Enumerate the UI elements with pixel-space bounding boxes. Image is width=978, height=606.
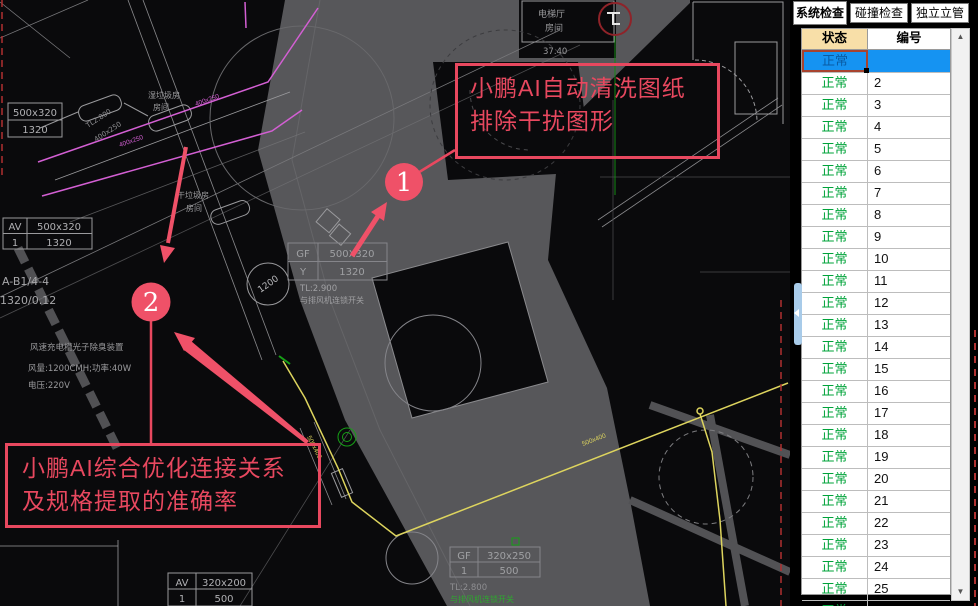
table-row[interactable]: 正常 10 <box>802 249 950 271</box>
table-row[interactable]: 正常 5 <box>802 139 950 161</box>
svg-text:320x250: 320x250 <box>487 551 531 562</box>
status-cell[interactable]: 正常 <box>802 205 868 226</box>
id-cell[interactable]: 20 <box>868 469 950 490</box>
status-cell[interactable]: 正常 <box>802 161 868 182</box>
red-dashed-edge-line <box>974 330 976 606</box>
id-cell[interactable]: 15 <box>868 359 950 380</box>
status-cell[interactable]: 正常 <box>802 513 868 534</box>
table-scrollbar[interactable]: ▲ ▼ <box>951 28 970 601</box>
svg-text:房间: 房间 <box>186 203 202 213</box>
status-cell[interactable]: 正常 <box>802 403 868 424</box>
id-cell[interactable]: 25 <box>868 579 950 600</box>
column-header-status[interactable]: 状态 <box>802 29 868 49</box>
svg-text:1: 1 <box>396 168 413 198</box>
id-cell[interactable]: 21 <box>868 491 950 512</box>
svg-text:A-B1/4-4: A-B1/4-4 <box>2 275 49 288</box>
svg-text:1320/0.12: 1320/0.12 <box>0 294 56 307</box>
svg-text:风速充电槽光子除臭装置: 风速充电槽光子除臭装置 <box>30 342 124 353</box>
svg-text:1320: 1320 <box>46 238 71 249</box>
panel-collapse-handle[interactable] <box>794 283 802 345</box>
svg-text:1320: 1320 <box>22 125 47 136</box>
scrollbar-up-icon[interactable]: ▲ <box>952 29 969 45</box>
status-cell[interactable]: 正常 <box>802 491 868 512</box>
id-cell[interactable]: 6 <box>868 161 950 182</box>
tab-collision-check[interactable]: 碰撞检查 <box>850 3 908 23</box>
status-cell[interactable]: 正常 <box>802 95 868 116</box>
table-row[interactable]: 正常 24 <box>802 557 950 579</box>
status-cell[interactable]: 正常 <box>802 359 868 380</box>
id-cell[interactable]: 2 <box>868 73 950 94</box>
status-cell[interactable]: 正常 <box>802 183 868 204</box>
svg-text:2: 2 <box>143 288 160 318</box>
column-header-id[interactable]: 编号 <box>868 29 950 49</box>
status-cell[interactable]: 正常 <box>802 469 868 490</box>
id-cell[interactable]: 11 <box>868 271 950 292</box>
id-cell[interactable]: 18 <box>868 425 950 446</box>
table-row[interactable]: 正常 7 <box>802 183 950 205</box>
status-cell[interactable]: 正常 <box>802 579 868 600</box>
id-cell[interactable]: 10 <box>868 249 950 270</box>
svg-text:GF: GF <box>296 249 310 260</box>
annotation-note-1-line2: 排除干扰图形 <box>470 105 717 138</box>
status-cell[interactable]: 正常 <box>802 271 868 292</box>
svg-text:湿垃圾房: 湿垃圾房 <box>148 90 180 100</box>
svg-text:GF: GF <box>457 551 471 562</box>
svg-text:与排风机连锁开关: 与排风机连锁开关 <box>450 594 514 604</box>
status-cell[interactable]: 正常 <box>802 227 868 248</box>
svg-text:500: 500 <box>499 566 518 577</box>
edge-strip <box>971 0 978 606</box>
svg-text:TL:2.900: TL:2.900 <box>299 284 337 294</box>
id-cell[interactable]: 13 <box>868 315 950 336</box>
svg-text:风量:1200CMH;功率:40W: 风量:1200CMH;功率:40W <box>28 363 132 374</box>
status-cell[interactable]: 正常 <box>802 601 868 606</box>
table-row[interactable]: 正常 6 <box>802 161 950 183</box>
status-cell[interactable]: 正常 <box>802 557 868 578</box>
table-row[interactable]: 正常 16 <box>802 381 950 403</box>
svg-text:1: 1 <box>461 566 467 577</box>
svg-text:电梯厅: 电梯厅 <box>538 8 565 20</box>
table-row[interactable]: 正常 22 <box>802 513 950 535</box>
table-row[interactable]: 正常 17 <box>802 403 950 425</box>
selection-fill-handle[interactable] <box>864 68 869 73</box>
svg-text:500x320: 500x320 <box>13 108 57 119</box>
status-cell[interactable]: 正常 <box>802 315 868 336</box>
id-cell[interactable]: 5 <box>868 139 950 160</box>
svg-text:干垃圾房: 干垃圾房 <box>177 190 209 200</box>
svg-text:500x320: 500x320 <box>37 222 81 233</box>
annotation-note-2-line2: 及规格提取的准确率 <box>22 485 318 518</box>
status-cell[interactable]: 正常 <box>802 139 868 160</box>
status-cell[interactable]: 正常 <box>802 73 868 94</box>
id-cell[interactable]: 16 <box>868 381 950 402</box>
id-cell[interactable]: 23 <box>868 535 950 556</box>
table-row[interactable]: 正常 20 <box>802 469 950 491</box>
table-row[interactable]: 正常 23 <box>802 535 950 557</box>
status-cell[interactable]: 正常 <box>802 447 868 468</box>
annotation-note-2: 小鹏AI综合优化连接关系 及规格提取的准确率 <box>5 443 321 528</box>
svg-text:房间: 房间 <box>545 22 563 34</box>
id-cell[interactable]: 7 <box>868 183 950 204</box>
table-row[interactable]: 正常 3 <box>802 95 950 117</box>
table-header-row: 状态 编号 <box>802 29 950 50</box>
table-row[interactable]: 正常 9 <box>802 227 950 249</box>
id-cell[interactable]: 19 <box>868 447 950 468</box>
annotation-note-2-line1: 小鹏AI综合优化连接关系 <box>22 452 318 485</box>
scrollbar-down-icon[interactable]: ▼ <box>952 584 969 600</box>
table-row[interactable]: 正常 25 <box>802 579 950 601</box>
id-cell[interactable]: 14 <box>868 337 950 358</box>
svg-text:37.40: 37.40 <box>543 47 567 57</box>
badge-2: 2 <box>132 283 171 322</box>
grid-rows: 正常 2 正常 3 正常 4 正常 5 正常 6 正常 7 正常 8 正常 9 … <box>802 73 950 606</box>
svg-text:AV: AV <box>8 222 21 233</box>
id-cell[interactable]: 9 <box>868 227 950 248</box>
id-cell[interactable]: 3 <box>868 95 950 116</box>
status-cell[interactable]: 正常 <box>802 337 868 358</box>
table-row[interactable]: 正常 19 <box>802 447 950 469</box>
annotation-note-1: 小鹏AI自动清洗图纸 排除干扰图形 <box>455 63 720 159</box>
selected-status-cell[interactable]: 正常 <box>802 50 868 72</box>
svg-text:TL:2.800: TL:2.800 <box>449 583 487 593</box>
table-row[interactable]: 正常 18 <box>802 425 950 447</box>
status-cell[interactable]: 正常 <box>802 381 868 402</box>
table-row-selected[interactable]: 正常 <box>802 50 950 73</box>
selected-id-cell[interactable] <box>868 50 950 72</box>
table-row[interactable]: 正常 21 <box>802 491 950 513</box>
result-table: 状态 编号 正常 正常 2 正常 3 正常 4 正常 5 正常 6 <box>801 28 951 595</box>
id-cell[interactable]: 24 <box>868 557 950 578</box>
table-row[interactable]: 正常 8 <box>802 205 950 227</box>
svg-text:Y: Y <box>299 267 307 278</box>
status-cell[interactable]: 正常 <box>802 293 868 314</box>
tab-system-check[interactable]: 系统检查 <box>793 1 847 25</box>
id-cell[interactable]: 22 <box>868 513 950 534</box>
id-cell[interactable]: 17 <box>868 403 950 424</box>
svg-text:房间: 房间 <box>153 102 169 112</box>
table-row[interactable]: 正常 14 <box>802 337 950 359</box>
svg-text:320x200: 320x200 <box>202 578 246 589</box>
app-window: 1200 400x250 400x250 500x4 <box>0 0 978 606</box>
table-row[interactable]: 正常 11 <box>802 271 950 293</box>
id-cell[interactable]: 4 <box>868 117 950 138</box>
status-cell[interactable]: 正常 <box>802 117 868 138</box>
svg-text:1320: 1320 <box>339 267 364 278</box>
id-cell[interactable]: 26 <box>868 601 950 606</box>
badge-1: 1 <box>385 163 423 201</box>
table-row[interactable]: 正常 13 <box>802 315 950 337</box>
table-row[interactable]: 正常 26 <box>802 601 950 606</box>
svg-text:1: 1 <box>12 238 18 249</box>
tab-independent-riser[interactable]: 独立立管 <box>911 3 969 23</box>
id-cell[interactable]: 12 <box>868 293 950 314</box>
status-cell[interactable]: 正常 <box>802 249 868 270</box>
annotation-note-1-line1: 小鹏AI自动清洗图纸 <box>470 72 717 105</box>
svg-text:电压:220V: 电压:220V <box>28 380 70 391</box>
check-panel: 系统检查 碰撞检查 独立立管 状态 编号 正常 正常 2 正常 3 正常 4 <box>790 0 978 606</box>
table-row[interactable]: 正常 4 <box>802 117 950 139</box>
svg-text:1: 1 <box>179 594 185 605</box>
svg-text:500: 500 <box>214 594 233 605</box>
table-row[interactable]: 正常 15 <box>802 359 950 381</box>
table-row[interactable]: 正常 12 <box>802 293 950 315</box>
table-row[interactable]: 正常 2 <box>802 73 950 95</box>
collapse-arrow-icon <box>794 309 799 317</box>
svg-text:与排风机连锁开关: 与排风机连锁开关 <box>300 295 364 305</box>
id-cell[interactable]: 8 <box>868 205 950 226</box>
status-cell[interactable]: 正常 <box>802 535 868 556</box>
svg-text:AV: AV <box>175 578 188 589</box>
status-cell[interactable]: 正常 <box>802 425 868 446</box>
